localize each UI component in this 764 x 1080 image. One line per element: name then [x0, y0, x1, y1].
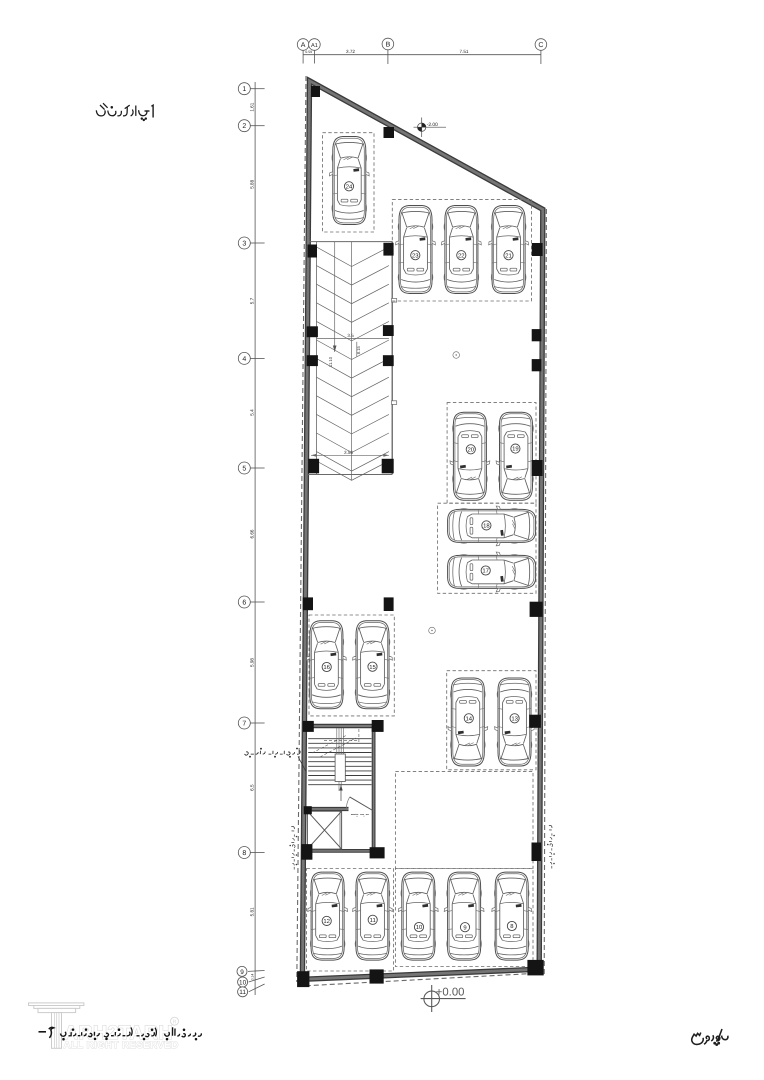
svg-text:5.81: 5.81: [250, 907, 255, 916]
svg-text:5.98: 5.98: [250, 658, 255, 667]
svg-text:8: 8: [242, 850, 246, 857]
svg-text:5.88: 5.88: [250, 179, 255, 188]
svg-text:B: B: [386, 42, 391, 49]
svg-text:6: 6: [242, 600, 246, 607]
svg-text:7.51: 7.51: [460, 49, 469, 54]
svg-text:11: 11: [370, 917, 376, 924]
svg-text:7: 7: [242, 721, 246, 728]
svg-text:10: 10: [239, 979, 247, 986]
svg-text:12: 12: [323, 918, 330, 925]
svg-text:10: 10: [416, 924, 423, 931]
svg-text:1.61: 1.61: [250, 102, 255, 111]
svg-text:1: 1: [242, 86, 246, 93]
svg-text:ALL RIGHT RESERVED: ALL RIGHT RESERVED: [64, 1040, 179, 1051]
svg-text:+0.00: +0.00: [436, 987, 465, 999]
svg-text:5.4: 5.4: [250, 409, 255, 416]
svg-text:3.72: 3.72: [346, 49, 355, 54]
svg-text:6.5: 6.5: [250, 784, 255, 791]
svg-text:-2.00: -2.00: [427, 122, 438, 128]
svg-text:22: 22: [458, 252, 465, 259]
svg-text:5.7: 5.7: [250, 297, 255, 304]
svg-text:A1: A1: [311, 43, 318, 49]
svg-text:R: R: [173, 1019, 177, 1025]
svg-text:19: 19: [512, 446, 519, 453]
svg-text:13: 13: [511, 715, 518, 722]
svg-text:11.10: 11.10: [328, 356, 333, 367]
svg-text:5: 5: [242, 466, 246, 473]
svg-text:14: 14: [466, 715, 473, 722]
svg-text:3.5: 3.5: [347, 333, 354, 338]
svg-text:3.56: 3.56: [344, 450, 353, 455]
svg-text:16: 16: [323, 664, 330, 671]
svg-text:6.66: 6.66: [250, 529, 255, 538]
svg-text:C: C: [538, 42, 543, 49]
svg-text:0.59: 0.59: [305, 50, 312, 54]
svg-text:17: 17: [482, 568, 489, 575]
svg-text:15: 15: [369, 664, 376, 671]
svg-text:24: 24: [346, 183, 353, 190]
svg-text:20: 20: [468, 446, 475, 453]
svg-text:A: A: [301, 42, 306, 49]
svg-text:9: 9: [463, 924, 466, 931]
svg-text:3: 3: [242, 241, 246, 248]
svg-text:9: 9: [240, 969, 244, 976]
svg-text:4: 4: [242, 356, 246, 363]
svg-text:0.14: 0.14: [251, 974, 255, 981]
svg-text:23: 23: [412, 252, 419, 259]
svg-text:11: 11: [239, 989, 246, 996]
svg-text:8.15: 8.15: [356, 345, 361, 354]
svg-text:18: 18: [483, 523, 490, 530]
svg-text:21: 21: [505, 252, 512, 259]
svg-text:2: 2: [242, 123, 246, 130]
